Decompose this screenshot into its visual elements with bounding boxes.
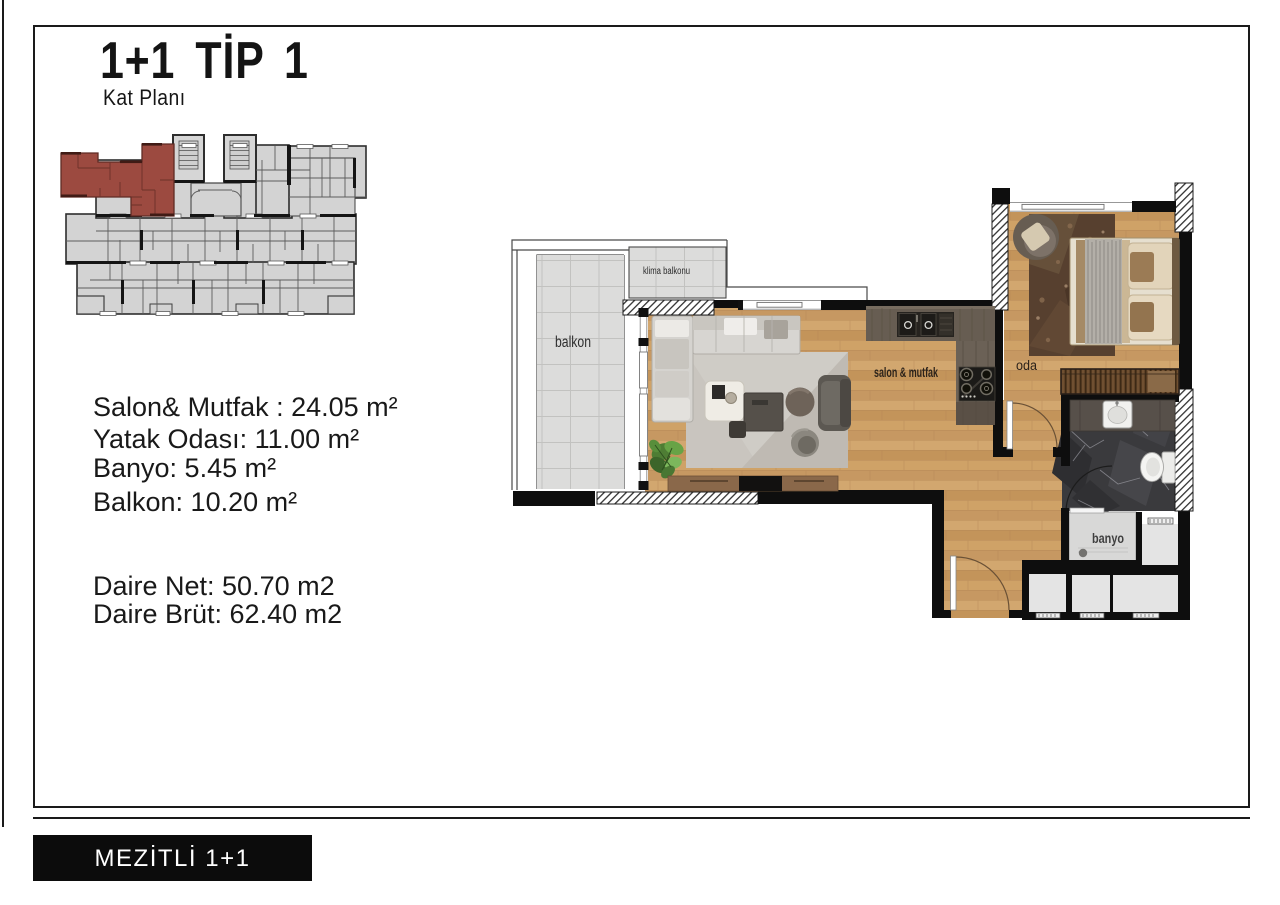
svg-text:balkon: balkon [555, 334, 591, 351]
svg-text:oda: oda [1016, 358, 1037, 373]
svg-text:salon & mutfak: salon & mutfak [874, 365, 938, 380]
svg-text:klima balkonu: klima balkonu [643, 266, 690, 277]
svg-text:banyo: banyo [1092, 531, 1124, 546]
